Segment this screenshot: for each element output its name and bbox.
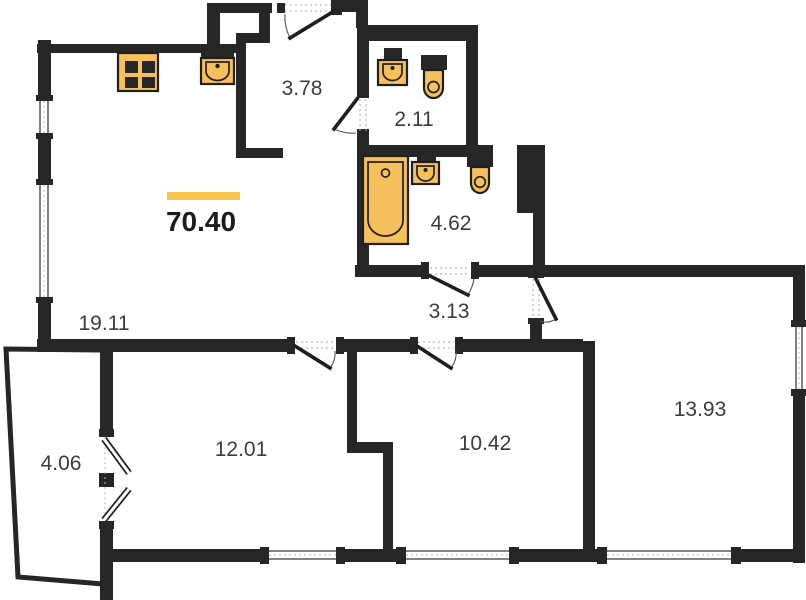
kitchen-sink-icon: [201, 49, 234, 84]
room-label-hallway: 3.78: [282, 77, 323, 100]
room-label-wc: 2.11: [394, 108, 433, 131]
bathroom-door: [430, 268, 474, 295]
window-room-right: [607, 551, 731, 559]
wc-door: [334, 99, 366, 133]
floor-plan-canvas: 70.40 19.11 3.78 2.11 4.62 3.13 12.01 10…: [0, 0, 806, 600]
stove-icon: [118, 53, 158, 91]
room-right-door: [533, 279, 556, 322]
total-area-label: 70.40: [166, 206, 236, 237]
room-label-corridor: 3.13: [429, 300, 470, 323]
floor-plan: 70.40 19.11 3.78 2.11 4.62 3.13 12.01 10…: [0, 0, 806, 600]
window-left-2: [40, 185, 48, 297]
room-label-room-right: 13.93: [674, 398, 727, 421]
room-label-room-left: 12.01: [215, 438, 268, 461]
window-room-left: [269, 551, 336, 559]
toilet-icon: [421, 55, 447, 98]
window-right-wall: [796, 327, 802, 389]
total-area-accent-bar: [167, 192, 240, 200]
bathroom-toilet-icon: [467, 153, 493, 193]
window-left-1: [40, 101, 48, 133]
room-label-living-kitchen: 19.11: [79, 312, 130, 335]
washbasin-icon: [378, 48, 407, 85]
room-middle-door: [417, 342, 456, 368]
entry-door: [285, 5, 331, 38]
bathtub-icon: [363, 156, 408, 244]
window-room-middle: [406, 551, 509, 559]
room-label-balcony: 4.06: [41, 452, 82, 475]
room-label-bathroom: 4.62: [431, 212, 472, 235]
room-label-room-middle: 10.42: [459, 432, 512, 455]
room-left-door: [295, 342, 335, 368]
